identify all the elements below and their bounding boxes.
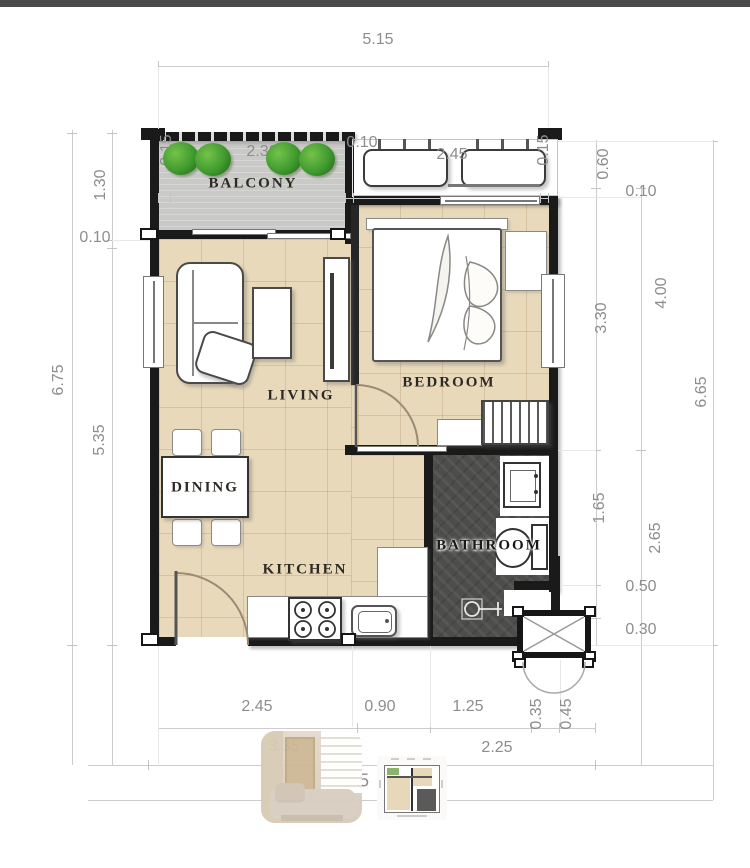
dimension-label: 6.65: [693, 376, 711, 407]
dimension-label: 2.25: [481, 739, 512, 757]
dimension-label: 1.65: [591, 492, 609, 523]
living-side-window: [143, 276, 164, 368]
dimension-label: 1.30: [92, 169, 110, 200]
plant-icon: [195, 143, 231, 176]
sink-icon: [351, 605, 397, 637]
dimension-line: [72, 130, 73, 765]
hall-wall: [551, 556, 560, 616]
plant-icon: [299, 143, 335, 176]
dining-chair: [211, 519, 241, 546]
top-border-strip: [0, 0, 750, 7]
bathroom-door-stub-wall: [514, 581, 552, 590]
floorplan-thumbnail: [377, 756, 447, 820]
dimension-label: 1.25: [452, 698, 483, 716]
dimension-label: 0.50: [625, 578, 656, 596]
wall-junction-marker: [330, 228, 346, 240]
living-bedroom-partition: [351, 205, 359, 385]
dining-chair: [211, 429, 241, 456]
dimension-label: 0.15: [535, 134, 553, 165]
shaft-corner-marker: [512, 606, 524, 617]
entrance-door-leaf: [514, 658, 526, 668]
kitchen-counter: [377, 547, 428, 598]
dimension-line: [112, 130, 113, 765]
dimension-line: [158, 66, 548, 67]
bed: [372, 228, 502, 362]
double-door-arc: [554, 662, 585, 693]
room-label-dining: DINING: [171, 480, 239, 497]
shaft-corner-marker: [584, 606, 596, 617]
dimension-line: [596, 140, 597, 645]
dimension-label: 0.35: [528, 698, 546, 729]
wardrobe: [481, 400, 549, 445]
bed-bench: [437, 419, 482, 446]
room-label-bathroom: BATHROOM: [436, 538, 542, 555]
dimension-label: 2.65: [647, 522, 665, 553]
dimension-line: [713, 140, 714, 800]
dining-chair: [172, 519, 202, 546]
dimension-label: 0.90: [364, 698, 395, 716]
room-label-kitchen: KITCHEN: [263, 562, 348, 579]
right-wall: [549, 196, 558, 592]
plant-icon: [163, 142, 199, 175]
interior-photo-thumbnail: [261, 731, 362, 823]
entrance-door-leaf: [582, 658, 594, 668]
dimension-label: 4.00: [653, 277, 671, 308]
wall-junction-marker: [341, 633, 356, 646]
room-label-living: LIVING: [267, 388, 334, 405]
stove-icon: [288, 597, 342, 641]
window-sill-line: [448, 184, 540, 187]
plant-icon: [266, 142, 302, 175]
floor-plan-canvas: BALCONY LIVING BEDROOM DINING KITCHEN BA…: [0, 0, 750, 868]
coffee-table: [252, 287, 292, 359]
room-label-bedroom: BEDROOM: [402, 375, 495, 392]
bedroom-sliding-door: [357, 446, 447, 452]
tv-icon: [330, 273, 334, 369]
dimension-label: 0.60: [595, 148, 613, 179]
ac-unit-icon: [363, 149, 448, 187]
dining-chair: [172, 429, 202, 456]
dimension-label: 5.35: [91, 424, 109, 455]
bedroom-side-window: [541, 274, 565, 368]
dimension-line: [641, 185, 642, 765]
dimension-label: 0.45: [558, 698, 576, 729]
dimension-label: 0.10: [79, 229, 110, 247]
dimension-label: 5.15: [362, 31, 393, 49]
tv-console: [323, 257, 350, 382]
dimension-label: 0.10: [346, 134, 377, 152]
dimension-label: 0.30: [625, 621, 656, 639]
dimension-label: 2.45: [436, 146, 467, 164]
dimension-label: 0.10: [625, 183, 656, 201]
dimension-label: 2.45: [241, 698, 272, 716]
double-door-arc: [523, 662, 554, 693]
room-label-balcony: BALCONY: [208, 176, 297, 193]
ac-unit-icon: [461, 149, 546, 187]
bedroom-top-window: [440, 196, 540, 205]
sink-icon: [503, 462, 541, 508]
dimension-label: 6.75: [50, 364, 68, 395]
wall-junction-marker: [141, 633, 159, 646]
wall-junction-marker: [140, 228, 158, 240]
pipe-shaft-icon: [517, 610, 591, 658]
dimension-label: 3.30: [593, 302, 611, 333]
balcony-parapet-wall: [150, 132, 355, 141]
balcony-sliding-door: [192, 229, 276, 235]
